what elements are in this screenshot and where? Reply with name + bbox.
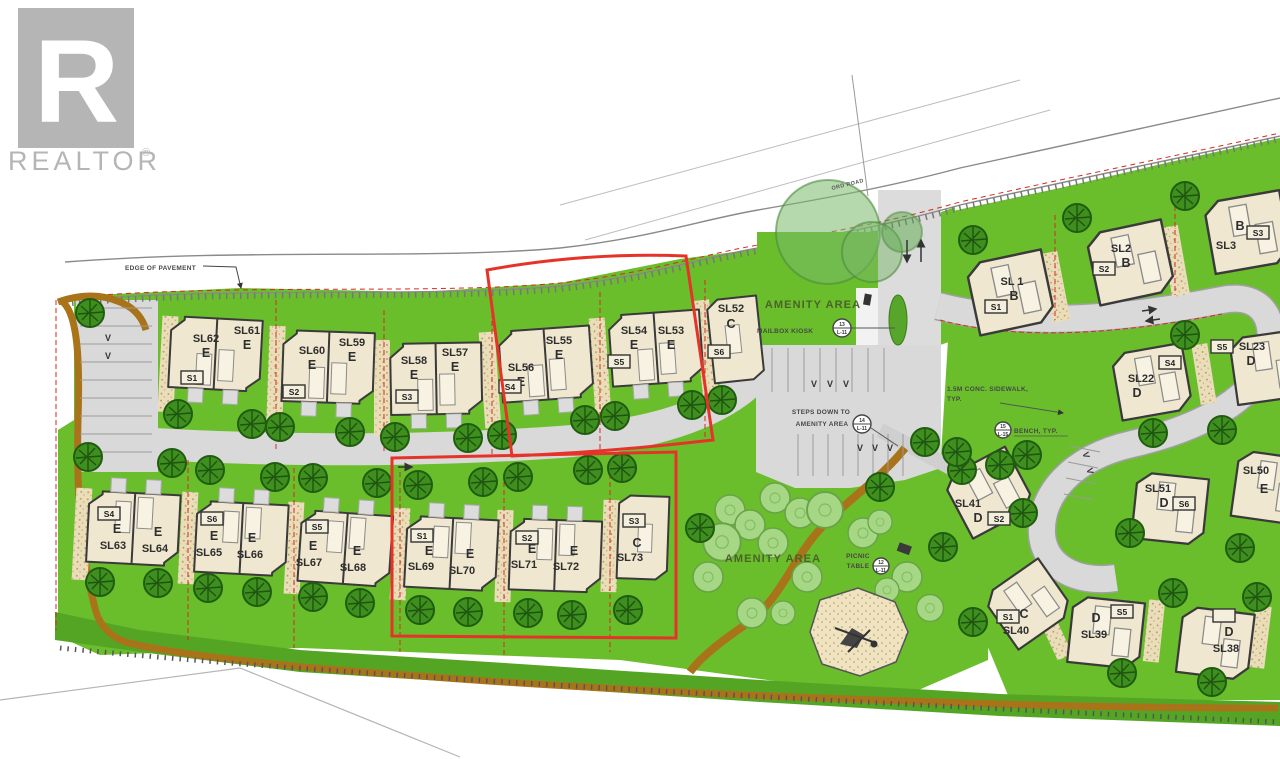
svg-text:SL58: SL58 — [401, 355, 427, 367]
svg-text:E: E — [348, 350, 356, 364]
tree-icon — [558, 601, 586, 629]
picnic-label-line1: PICNIC — [846, 553, 870, 560]
svg-text:SL22: SL22 — [1128, 373, 1154, 385]
tree-icon — [1009, 499, 1037, 527]
tree-icon — [504, 463, 532, 491]
keynote-picnic: 12 L-11 — [873, 558, 889, 574]
svg-text:SL68: SL68 — [340, 562, 366, 574]
svg-text:SL53: SL53 — [658, 325, 684, 337]
svg-text:E: E — [308, 358, 316, 372]
svg-text:SL51: SL51 — [1145, 483, 1171, 495]
steps-label-line2: AMENITY AREA — [796, 421, 849, 428]
svg-text:SL40: SL40 — [1003, 625, 1029, 637]
svg-text:L-11: L-11 — [857, 426, 867, 432]
svg-text:SL54: SL54 — [621, 325, 648, 337]
svg-text:C: C — [632, 536, 641, 550]
svg-text:D: D — [1246, 354, 1255, 368]
tree-icon — [1171, 321, 1199, 349]
svg-text:E: E — [243, 338, 251, 352]
svg-text:S1: S1 — [417, 531, 428, 541]
tree-icon — [986, 451, 1014, 479]
unit-sl73 — [617, 495, 670, 580]
tree-canopy-icon — [917, 595, 944, 622]
unit-box: S2 — [988, 512, 1010, 525]
tree-icon — [1226, 534, 1254, 562]
svg-text:D: D — [1091, 611, 1100, 625]
sidewalk-note-line1: 1.5M CONC. SIDEWALK, — [947, 386, 1028, 393]
tree-icon — [708, 386, 736, 414]
svg-text:E: E — [154, 525, 162, 539]
tree-canopy-icon — [693, 562, 723, 592]
svg-text:SL2: SL2 — [1111, 243, 1131, 255]
unit-box: S6 — [708, 345, 730, 358]
svg-text:S1: S1 — [1003, 612, 1014, 622]
bench-label: BENCH, TYP. — [1014, 428, 1058, 435]
unit-box: S6 — [201, 512, 223, 525]
svg-text:E: E — [466, 547, 474, 561]
svg-text:SL73: SL73 — [617, 552, 643, 564]
tree-icon — [238, 410, 266, 438]
svg-text:E: E — [555, 348, 563, 362]
playground — [810, 588, 908, 676]
svg-text:SL65: SL65 — [196, 547, 222, 559]
svg-text:S6: S6 — [207, 514, 218, 524]
svg-text:SL 1: SL 1 — [1000, 276, 1023, 288]
svg-text:D: D — [1224, 625, 1233, 639]
svg-text:S2: S2 — [522, 533, 533, 543]
svg-text:S4: S4 — [104, 509, 115, 519]
svg-text:E: E — [202, 346, 210, 360]
tree-icon — [943, 438, 971, 466]
svg-text:V: V — [857, 443, 863, 453]
svg-text:E: E — [248, 531, 256, 545]
svg-text:E: E — [210, 529, 218, 543]
svg-text:B: B — [1121, 256, 1130, 270]
svg-text:14: 14 — [859, 418, 865, 424]
svg-text:V: V — [827, 379, 833, 389]
tree-icon — [614, 596, 642, 624]
svg-text:B: B — [1235, 219, 1244, 233]
svg-text:V: V — [105, 351, 111, 361]
svg-text:S6: S6 — [714, 347, 725, 357]
svg-text:V: V — [105, 333, 111, 343]
svg-text:B: B — [1009, 289, 1018, 303]
tree-icon — [299, 464, 327, 492]
tree-icon — [266, 413, 294, 441]
svg-text:SL38: SL38 — [1213, 643, 1239, 655]
tree-icon — [678, 391, 706, 419]
svg-text:S5: S5 — [1217, 342, 1228, 352]
unit-box — [1213, 609, 1235, 622]
tree-canopy-icon — [771, 601, 795, 625]
tree-icon — [601, 402, 629, 430]
tree-icon — [336, 418, 364, 446]
tree-icon — [299, 583, 327, 611]
unit-box: S3 — [396, 390, 418, 403]
tree-icon — [1139, 419, 1167, 447]
svg-text:E: E — [113, 522, 121, 536]
svg-text:SL67: SL67 — [296, 557, 322, 569]
svg-text:S2: S2 — [994, 514, 1005, 524]
svg-text:V: V — [811, 379, 817, 389]
survey-line — [0, 668, 460, 757]
steps-label-line1: STEPS DOWN TO — [792, 409, 850, 416]
median-island — [889, 295, 907, 345]
unit-box: S1 — [985, 300, 1007, 313]
tree-icon — [404, 471, 432, 499]
svg-text:SL72: SL72 — [553, 561, 579, 573]
svg-text:E: E — [309, 539, 317, 553]
tree-icon — [194, 574, 222, 602]
amenity-area-bottom-label: AMENITY AREA — [725, 553, 821, 565]
tree-canopy-icon — [868, 510, 892, 534]
unit-box: S6 — [1173, 497, 1195, 510]
tree-canopy-icon — [807, 492, 843, 528]
svg-text:S4: S4 — [1165, 358, 1176, 368]
tree-canopy-icon — [882, 212, 922, 252]
svg-text:E: E — [410, 368, 418, 382]
edge-of-pavement-label: EDGE OF PAVEMENT — [125, 265, 196, 272]
svg-text:L-11: L-11 — [876, 568, 886, 574]
tree-icon — [144, 569, 172, 597]
tree-icon — [959, 226, 987, 254]
picnic-label-line2: TABLE — [847, 563, 870, 570]
tree-icon — [608, 454, 636, 482]
unit-box: S1 — [181, 371, 203, 384]
svg-text:C: C — [1019, 607, 1028, 621]
svg-text:SL71: SL71 — [511, 559, 537, 571]
svg-text:13: 13 — [839, 322, 845, 328]
tree-icon — [1208, 416, 1236, 444]
tree-icon — [1063, 204, 1091, 232]
tree-canopy-icon — [792, 562, 822, 592]
tree-icon — [74, 443, 102, 471]
svg-text:E: E — [425, 544, 433, 558]
svg-text:S2: S2 — [289, 387, 300, 397]
svg-text:S5: S5 — [1117, 607, 1128, 617]
tree-icon — [571, 406, 599, 434]
unit-box: S4 — [98, 507, 120, 520]
svg-text:S1: S1 — [991, 302, 1002, 312]
unit-box: S5 — [1211, 340, 1233, 353]
svg-text:SL64: SL64 — [142, 543, 169, 555]
amenity-area-top-label: AMENITY AREA — [765, 299, 861, 311]
svg-text:SL57: SL57 — [442, 347, 468, 359]
tree-icon — [469, 468, 497, 496]
svg-text:S1: S1 — [187, 373, 198, 383]
svg-text:SL69: SL69 — [408, 561, 434, 573]
tree-icon — [1013, 441, 1041, 469]
mailbox-kiosk-label: MAILBOX KIOSK — [757, 328, 813, 335]
svg-text:SL56: SL56 — [508, 362, 534, 374]
tree-icon — [261, 463, 289, 491]
tree-icon — [929, 533, 957, 561]
tree-icon — [454, 424, 482, 452]
tree-icon — [86, 568, 114, 596]
svg-text:SL52: SL52 — [718, 303, 744, 315]
unit-box: S4 — [1159, 356, 1181, 369]
svg-text:V: V — [887, 443, 893, 453]
tree-icon — [76, 299, 104, 327]
tree-icon — [686, 514, 714, 542]
tree-icon — [164, 400, 192, 428]
svg-text:SL60: SL60 — [299, 345, 325, 357]
tree-icon — [866, 473, 894, 501]
tree-icon — [196, 456, 224, 484]
svg-text:S3: S3 — [629, 516, 640, 526]
unit-box: S2 — [1093, 262, 1115, 275]
svg-text:D: D — [973, 511, 982, 525]
tree-icon — [514, 599, 542, 627]
unit-box: S1 — [411, 529, 433, 542]
realtor-logo-word: REALTOR — [8, 146, 161, 176]
svg-text:S2: S2 — [1099, 264, 1110, 274]
tree-icon — [158, 449, 186, 477]
tree-icon — [243, 578, 271, 606]
unit-sl50 — [1231, 450, 1280, 526]
svg-text:E: E — [667, 338, 675, 352]
tree-canopy-icon — [737, 598, 767, 628]
tree-icon — [911, 428, 939, 456]
svg-text:E: E — [570, 544, 578, 558]
tree-icon — [1198, 668, 1226, 696]
site-plan-image: SL62E SL61E SL60E SL59E SL58E SL57E SL56… — [0, 0, 1280, 759]
unit-box: S1 — [997, 610, 1019, 623]
svg-text:SL70: SL70 — [449, 565, 475, 577]
sidewalk-note-line2: TYP. — [947, 396, 962, 403]
svg-text:S5: S5 — [312, 522, 323, 532]
tree-icon — [1116, 519, 1144, 547]
tree-icon — [574, 456, 602, 484]
tree-icon — [454, 598, 482, 626]
svg-text:S3: S3 — [1253, 228, 1264, 238]
svg-text:SL62: SL62 — [193, 333, 219, 345]
svg-text:SL41: SL41 — [955, 498, 981, 510]
svg-text:L-11: L-11 — [837, 330, 847, 336]
svg-text:SL61: SL61 — [234, 325, 260, 337]
svg-text:SL39: SL39 — [1081, 629, 1107, 641]
svg-text:SL55: SL55 — [546, 335, 572, 347]
tree-icon — [406, 596, 434, 624]
svg-text:L-15: L-15 — [998, 432, 1009, 438]
unit-box: S3 — [623, 514, 645, 527]
svg-text:SL66: SL66 — [237, 549, 263, 561]
svg-text:E: E — [630, 338, 638, 352]
leader-line — [203, 266, 241, 288]
svg-text:E: E — [451, 360, 459, 374]
unit-box: S5 — [608, 355, 630, 368]
svg-text:SL63: SL63 — [100, 540, 126, 552]
svg-text:S4: S4 — [505, 382, 516, 392]
site-plan-svg: SL62E SL61E SL60E SL59E SL58E SL57E SL56… — [0, 0, 1280, 759]
svg-text:SL59: SL59 — [339, 337, 365, 349]
unit-box: S3 — [1247, 226, 1269, 239]
tree-icon — [1171, 182, 1199, 210]
realtor-logo: R REALTOR ® — [8, 8, 161, 176]
tree-icon — [381, 423, 409, 451]
tree-icon — [1159, 579, 1187, 607]
realtor-logo-r: R — [34, 16, 119, 148]
svg-text:E: E — [353, 544, 361, 558]
svg-text:V: V — [872, 443, 878, 453]
svg-text:15: 15 — [1000, 424, 1006, 430]
svg-text:E: E — [1260, 482, 1268, 496]
svg-text:SL3: SL3 — [1216, 240, 1236, 252]
unit-box: S2 — [283, 385, 305, 398]
registered-mark-icon: ® — [142, 147, 150, 159]
tree-icon — [1108, 659, 1136, 687]
svg-text:S6: S6 — [1179, 499, 1190, 509]
svg-text:S5: S5 — [614, 357, 625, 367]
svg-text:12: 12 — [878, 560, 884, 566]
svg-text:D: D — [1132, 386, 1141, 400]
tree-icon — [1243, 583, 1271, 611]
svg-text:SL23: SL23 — [1239, 341, 1265, 353]
svg-text:S3: S3 — [402, 392, 413, 402]
svg-text:D: D — [1159, 496, 1168, 510]
tree-icon — [959, 608, 987, 636]
tree-icon — [346, 589, 374, 617]
unit-box: S5 — [306, 520, 328, 533]
unit-box: S5 — [1111, 605, 1133, 618]
svg-text:C: C — [726, 317, 735, 331]
tree-icon — [363, 469, 391, 497]
svg-text:V: V — [843, 379, 849, 389]
unit-box: S2 — [516, 531, 538, 544]
svg-text:SL50: SL50 — [1243, 465, 1269, 477]
